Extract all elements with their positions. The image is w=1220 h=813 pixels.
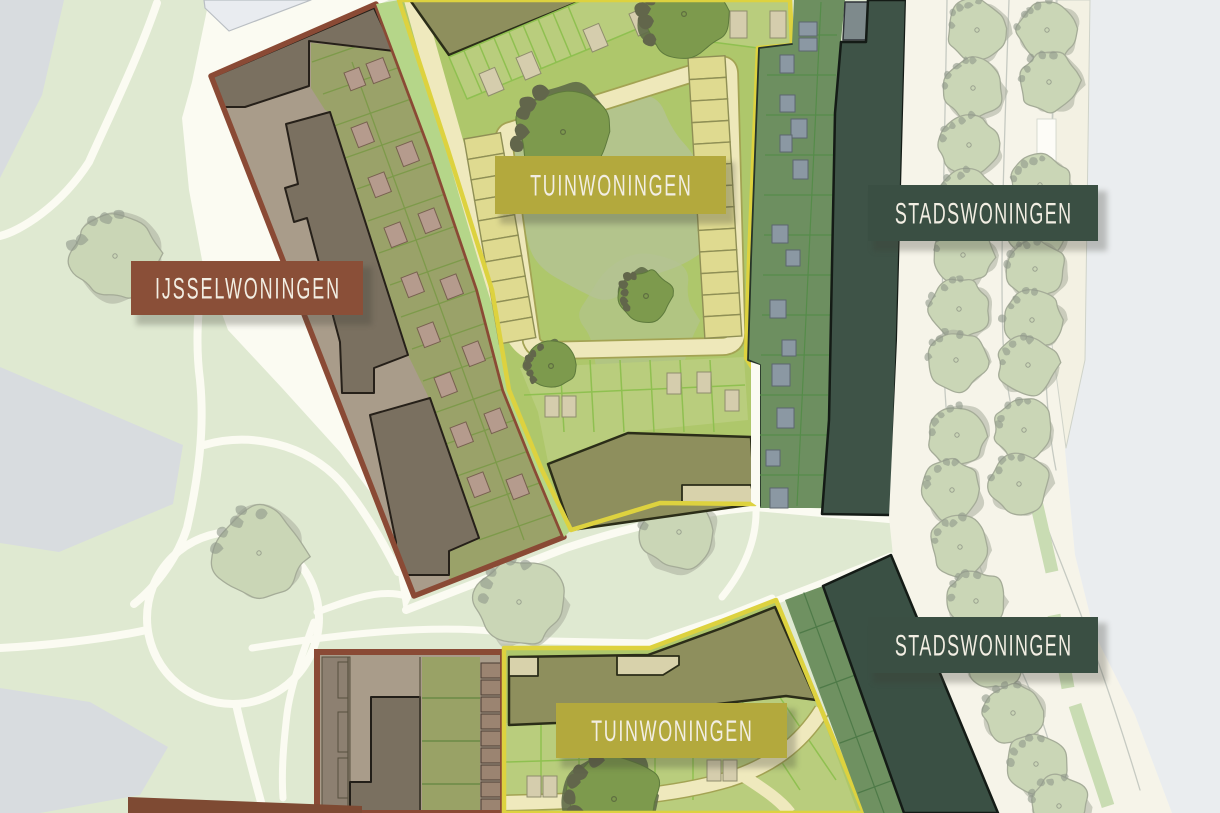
svg-text:STADSWONINGEN: STADSWONINGEN — [895, 198, 1071, 231]
svg-text:TUINWONINGEN: TUINWONINGEN — [530, 170, 691, 203]
svg-text:TUINWONINGEN: TUINWONINGEN — [591, 716, 752, 749]
svg-text:STADSWONINGEN: STADSWONINGEN — [895, 630, 1071, 663]
svg-text:IJSSELWONINGEN: IJSSELWONINGEN — [155, 273, 339, 306]
